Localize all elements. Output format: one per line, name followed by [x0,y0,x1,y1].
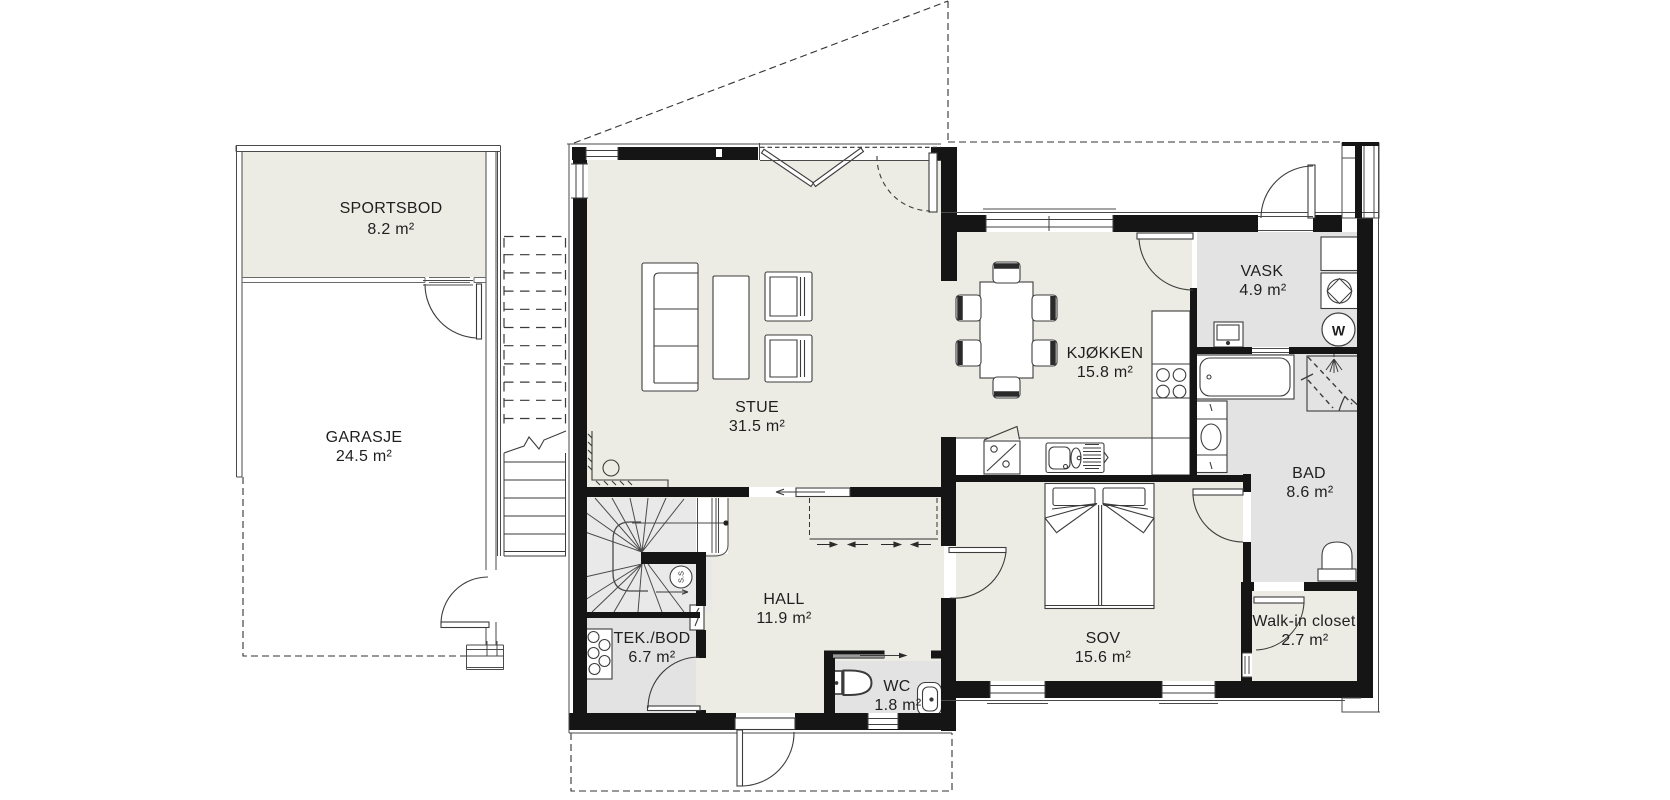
svg-text:KJØKKEN: KJØKKEN [1067,345,1144,362]
svg-text:4.9 m²: 4.9 m² [1239,282,1287,299]
svg-text:1.8 m²: 1.8 m² [874,697,922,714]
svg-text:W: W [1332,323,1346,339]
svg-text:TEK./BOD: TEK./BOD [613,630,690,647]
svg-text:8.2 m²: 8.2 m² [367,221,415,238]
svg-text:31.5 m²: 31.5 m² [729,418,786,435]
svg-text:24.5 m²: 24.5 m² [336,448,393,465]
svg-text:HALL: HALL [763,591,804,608]
svg-text:2.7 m²: 2.7 m² [1281,632,1329,649]
svg-text:VASK: VASK [1241,263,1284,280]
svg-text:15.6 m²: 15.6 m² [1075,649,1132,666]
svg-text:6.7 m²: 6.7 m² [628,649,676,666]
svg-text:SOV: SOV [1086,630,1121,647]
svg-text:S.S: S.S [677,571,686,583]
svg-text:Walk-in closet: Walk-in closet [1252,613,1355,630]
svg-text:BAD: BAD [1292,465,1326,482]
svg-text:8.6 m²: 8.6 m² [1286,484,1334,501]
svg-text:SPORTSBOD: SPORTSBOD [340,200,443,217]
svg-text:WC: WC [883,678,910,695]
svg-text:15.8 m²: 15.8 m² [1077,364,1134,381]
svg-text:STUE: STUE [735,399,779,416]
svg-text:11.9 m²: 11.9 m² [756,610,812,627]
svg-text:GARASJE: GARASJE [326,429,403,446]
